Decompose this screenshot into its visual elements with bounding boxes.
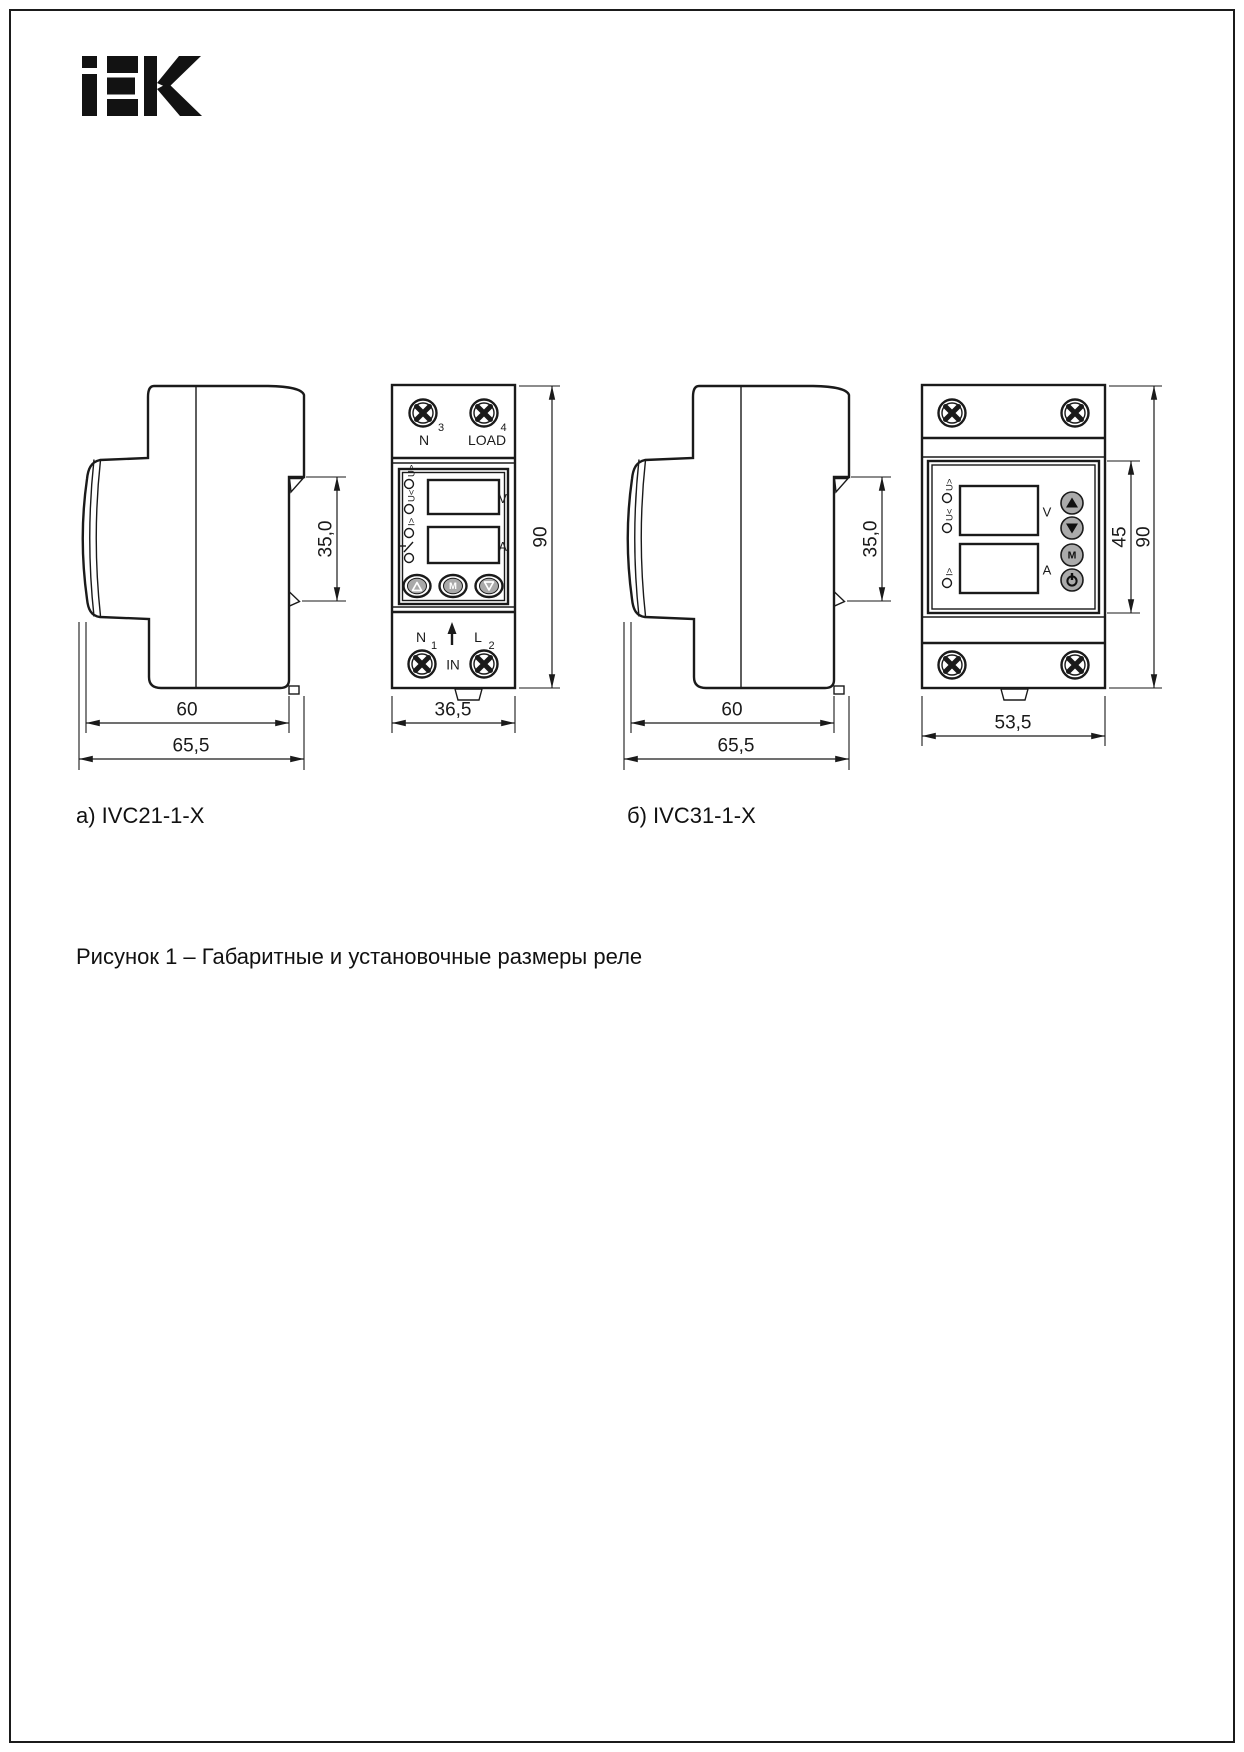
button-down-b[interactable] <box>1061 517 1083 539</box>
screw-terminal-4-icon <box>471 400 498 427</box>
dim-label-height-b: 90 <box>1134 526 1155 547</box>
dim-label-depth-total-b: 65,5 <box>718 736 755 757</box>
dim-label-panel-height-b: 45 <box>1110 526 1131 547</box>
button-up-a[interactable] <box>404 575 431 597</box>
terminal-label-n-top-a: N <box>419 432 429 448</box>
dim-b-rail-notch: 35,0 <box>847 477 891 601</box>
terminal-num-3-a: 3 <box>438 422 444 434</box>
device-b-drawing: 35,0 60 65,5 <box>624 385 1162 770</box>
terminal-label-l-a: L <box>474 629 482 645</box>
dim-label-height-a: 90 <box>531 526 552 547</box>
dim-label-depth-total-a: 65,5 <box>173 736 210 757</box>
current-unit-b: A <box>1043 563 1052 578</box>
dim-label-width-a: 36,5 <box>435 700 472 721</box>
current-display-b <box>960 544 1038 593</box>
dim-b-width: 53,5 <box>922 696 1105 746</box>
dim-label-depth-b: 60 <box>721 700 742 721</box>
button-power-b[interactable] <box>1061 569 1083 591</box>
led-label-i-over-a: I> <box>407 517 418 526</box>
button-up-b[interactable] <box>1061 492 1083 514</box>
din-clip-tab-a <box>455 689 482 700</box>
led-i-over-icon <box>405 529 414 538</box>
manual-page: 35,0 60 65,5 <box>0 0 1244 1752</box>
side-view-a <box>83 386 304 694</box>
screw-bottom-left-b-icon <box>939 652 966 679</box>
front-view-b: U> U< I> V A <box>922 385 1105 700</box>
voltage-unit-a: V <box>499 492 508 506</box>
current-display-a <box>428 527 499 563</box>
led-label-u-over-a: U> <box>407 464 418 477</box>
led-u-over-icon <box>405 480 414 489</box>
terminal-num-1-a: 1 <box>431 640 437 652</box>
side-view-b <box>628 386 849 694</box>
dim-a-height: 90 <box>519 386 560 688</box>
led-i-over-b-icon <box>943 579 952 588</box>
input-label-a: IN <box>446 658 460 673</box>
led-label-i-over-b: I> <box>945 567 956 576</box>
led-u-under-icon <box>405 505 414 514</box>
screw-top-left-b-icon <box>939 400 966 427</box>
button-mode-b[interactable]: M <box>1061 544 1083 566</box>
terminal-num-4-a: 4 <box>500 422 506 434</box>
figure-caption: Рисунок 1 – Габаритные и установочные ра… <box>76 944 642 970</box>
mode-button-label-a: M <box>449 581 457 592</box>
voltage-display-a <box>428 480 499 514</box>
led-label-u-under-a: U< <box>407 489 418 502</box>
terminal-label-n-bottom-a: N <box>416 629 426 645</box>
din-clip-tab-b <box>1001 689 1028 700</box>
led-u-over-b-icon <box>943 494 952 503</box>
voltage-unit-b: V <box>1043 505 1052 520</box>
dim-a-rail-notch: 35,0 <box>302 477 346 601</box>
caption-device-b: б) IVC31-1-X <box>627 803 756 829</box>
dim-label-notch-b: 35,0 <box>861 521 882 558</box>
screw-terminal-1-icon <box>409 651 436 678</box>
caption-device-a: а) IVC21-1-X <box>76 803 204 829</box>
led-u-under-b-icon <box>943 524 952 533</box>
button-mode-a[interactable]: M <box>440 575 467 597</box>
voltage-display-b <box>960 486 1038 535</box>
dim-label-width-b: 53,5 <box>995 713 1032 734</box>
button-down-a[interactable] <box>476 575 503 597</box>
screw-terminal-3-icon <box>410 400 437 427</box>
terminal-label-load-a: LOAD <box>468 432 506 448</box>
front-view-a: N 3 LOAD 4 U> U< I> <box>392 385 515 700</box>
led-label-u-under-b: U< <box>945 508 956 521</box>
figure-drawings: 35,0 60 65,5 <box>0 0 1244 1010</box>
terminal-num-2-a: 2 <box>488 640 494 652</box>
dim-label-depth-a: 60 <box>176 700 197 721</box>
screw-terminal-2-icon <box>471 651 498 678</box>
device-a-drawing: 35,0 60 65,5 <box>79 385 560 770</box>
dim-a-width: 36,5 <box>392 696 515 733</box>
screw-bottom-right-b-icon <box>1062 652 1089 679</box>
dim-label-notch-a: 35,0 <box>316 521 337 558</box>
mode-button-label-b: M <box>1068 550 1077 562</box>
current-unit-a: A <box>499 540 508 554</box>
led-label-u-over-b: U> <box>945 478 956 491</box>
screw-top-right-b-icon <box>1062 400 1089 427</box>
